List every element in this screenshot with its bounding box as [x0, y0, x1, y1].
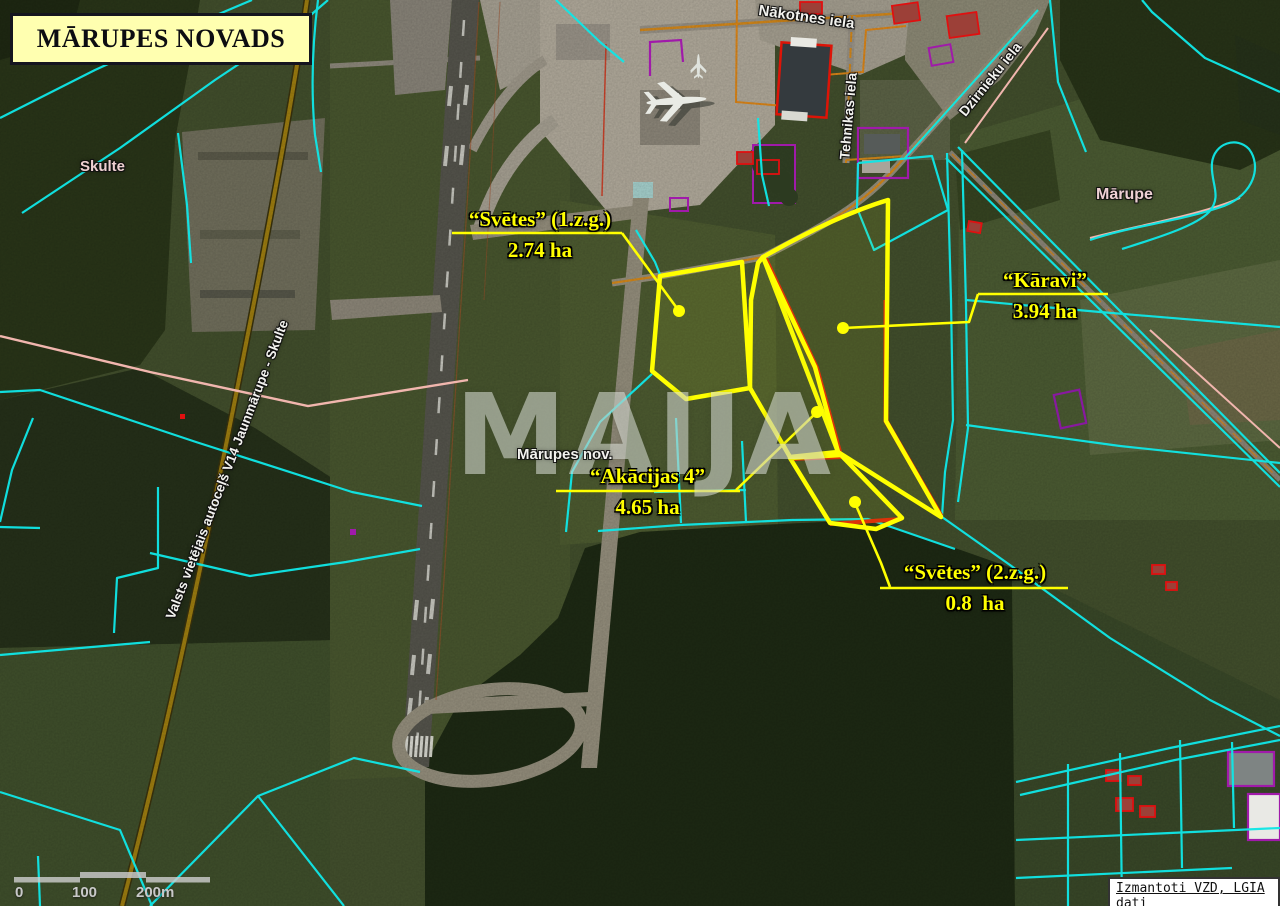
attribution-box: Izmantoti VZD, LGIA dati	[1108, 877, 1280, 906]
parcel-name: “Kāravi”	[960, 267, 1130, 293]
parcel-name: “Akācijas 4”	[545, 463, 750, 489]
municipality-label: Mārupes nov.	[517, 446, 613, 463]
scale-label-start: 0	[15, 884, 23, 901]
place-label-marupe: Mārupe	[1096, 186, 1153, 204]
parcel-area: 4.65 ha	[545, 495, 750, 519]
map-viewport: MAIJA MĀRUPES NOVADS “Svētes” (1.z.g.) 2…	[0, 0, 1280, 906]
parcel-area: 3.94 ha	[960, 299, 1130, 323]
parcel-label-svetes-2: “Svētes” (2.z.g.) 0.8 ha	[875, 559, 1075, 615]
parcel-label-karavi: “Kāravi” 3.94 ha	[960, 267, 1130, 323]
place-label-skulte: Skulte	[80, 158, 125, 175]
attribution-text: Izmantoti VZD, LGIA dati	[1116, 881, 1265, 906]
parcel-label-akacijas: “Akācijas 4” 4.65 ha	[545, 463, 750, 519]
map-title: MĀRUPES NOVADS	[37, 24, 286, 54]
title-box: MĀRUPES NOVADS	[10, 13, 312, 65]
parcel-name: “Svētes” (1.z.g.)	[440, 206, 640, 232]
parcel-label-svetes-1: “Svētes” (1.z.g.) 2.74 ha	[440, 206, 640, 262]
parcel-area: 2.74 ha	[440, 238, 640, 262]
parcel-name: “Svētes” (2.z.g.)	[875, 559, 1075, 585]
parcel-area: 0.8 ha	[875, 591, 1075, 615]
scale-label-end: 200m	[136, 884, 174, 901]
scale-label-mid: 100	[72, 884, 97, 901]
